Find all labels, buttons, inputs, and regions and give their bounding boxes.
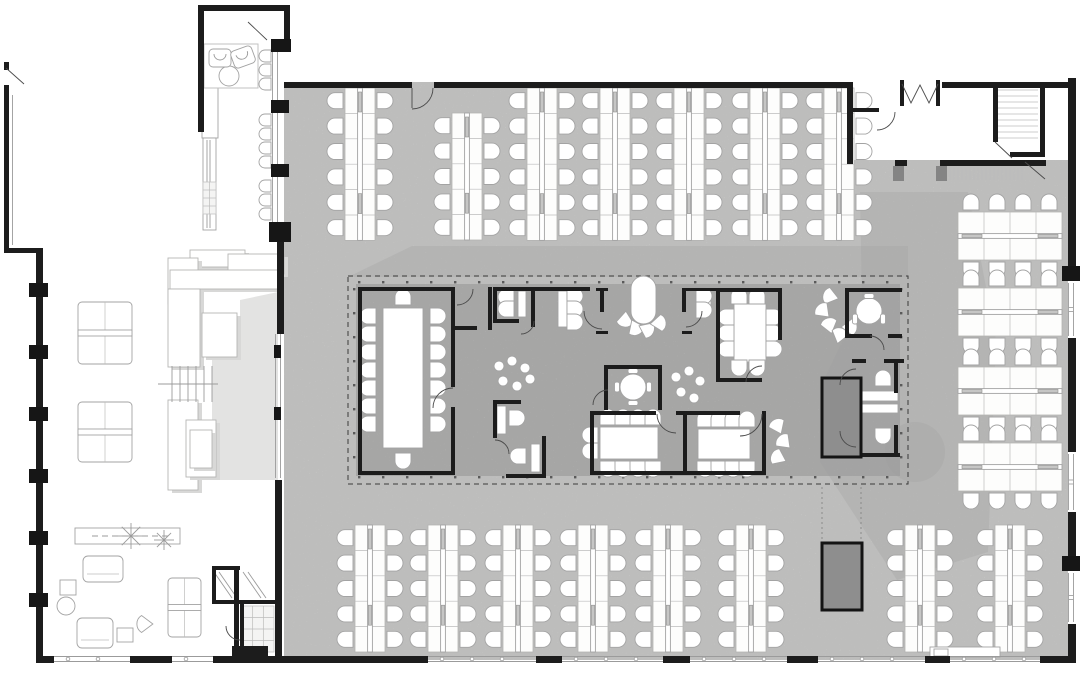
chair-shape [387,555,403,571]
chair-shape [806,169,822,185]
chair-shape [706,93,722,109]
task-chair [1027,581,1043,597]
chair-shape [875,370,891,386]
table-gap [78,330,132,336]
task-chair [327,144,343,160]
detail-line [248,572,266,598]
chair-shape [460,555,476,571]
task-chair [434,219,450,235]
chair-shape [377,169,393,185]
chair-shape [460,606,476,622]
chair-shape [525,374,535,384]
wall-segment [130,656,172,663]
task-chair [989,493,1005,509]
table [383,308,423,448]
table [117,628,133,642]
chair-shape [881,314,886,324]
side-chair [628,369,638,374]
task-chair [1015,270,1031,286]
bar-stool [259,64,271,76]
round-table [57,597,75,615]
track-mark [526,281,528,283]
task-chair [1015,349,1031,365]
chair-shape [768,555,784,571]
task-chair [768,631,784,647]
chair-shape [685,530,701,546]
chair-shape [360,308,376,324]
wall-segment [212,600,242,604]
chair-shape [1041,349,1057,365]
task-chair [430,398,446,414]
plant [154,530,174,550]
beanbag [494,361,504,371]
chair-shape [732,169,748,185]
chair-shape [806,93,822,109]
chair-shape [327,93,343,109]
task-chair [806,194,822,210]
chair-shape [732,144,748,160]
chair-shape [685,581,701,597]
chair-shape [977,555,993,571]
task-chair [559,144,575,160]
round-table [620,374,646,400]
wall-segment [847,82,853,164]
task-chair [768,581,784,597]
task-chair [656,93,672,109]
task-chair [696,302,712,318]
chair-shape [559,194,575,210]
task-chair [535,530,551,546]
wall-segment [590,471,766,475]
chair-shape [806,118,822,134]
chair-shape [718,581,734,597]
task-chair [582,194,598,210]
task-chair [806,220,822,236]
task-chair [460,530,476,546]
chair-shape [410,631,426,647]
task-chair [582,118,598,134]
planter [962,234,982,237]
planter [687,194,690,214]
task-chair [718,341,734,357]
task-chair [509,144,525,160]
task-chair [377,144,393,160]
chair-shape [1015,349,1031,365]
task-chair [582,144,598,160]
wall-segment [716,378,762,382]
task-chair [430,326,446,342]
task-chair [656,169,672,185]
track-mark [886,476,888,478]
table [698,429,750,459]
mullion-tick [66,657,70,661]
planter [368,529,371,549]
chair-shape [485,631,501,647]
armchair [230,45,257,69]
chair-shape [360,344,376,360]
chair-shape [377,220,393,236]
wall-segment [604,365,662,369]
desk-cluster [434,113,500,240]
track-mark [358,281,360,283]
detail-line [243,572,261,598]
chair-shape [689,393,699,403]
mullion-tick [604,657,608,661]
track-mark [900,408,902,410]
task-chair [509,169,525,185]
chair-shape [1015,270,1031,286]
sofa [77,618,113,648]
column-block [271,39,291,52]
wall-segment [845,288,849,338]
chair-shape [509,144,525,160]
task-chair [610,581,626,597]
chair-shape [460,581,476,597]
chair-shape [963,194,979,210]
chair-shape [768,581,784,597]
chair-shape [887,581,903,597]
column-block [29,407,48,421]
chair-shape [887,631,903,647]
bar-stool [259,180,271,192]
planter [666,529,669,549]
chair-shape [485,530,501,546]
chair-shape [259,128,271,140]
task-chair [434,169,450,185]
track-mark [886,281,888,283]
task-chair [610,530,626,546]
track-mark [502,476,504,478]
task-chair [460,631,476,647]
chair-shape [1027,631,1043,647]
task-chair [610,606,626,622]
chair-shape [628,369,638,374]
chair-shape [567,314,583,330]
task-chair [749,360,765,376]
desk-cluster [718,525,784,652]
chair-shape [628,401,638,406]
chair-shape [632,93,648,109]
wall-segment [787,656,818,663]
track-mark [790,476,792,478]
task-chair [718,581,734,597]
table [518,291,526,317]
chair-shape [782,220,798,236]
chair-shape [671,372,681,382]
chair-shape [484,118,500,134]
sofa-body [77,618,113,648]
track-mark [430,476,432,478]
chair-shape [610,631,626,647]
task-chair [977,606,993,622]
chair-shape [494,361,504,371]
planter [591,529,594,549]
table [558,291,567,327]
chair-shape [806,144,822,160]
task-chair [485,631,501,647]
wall-segment [716,288,720,382]
chair-shape [337,530,353,546]
planter [918,605,921,625]
task-chair [937,530,953,546]
track-mark [358,476,360,478]
track-mark [478,281,480,283]
plant [118,523,144,549]
task-chair [498,301,514,317]
task-chair [963,349,979,365]
wall-segment [451,287,455,387]
track-mark [670,281,672,283]
task-chair [806,93,822,109]
task-chair [706,93,722,109]
task-chair [732,169,748,185]
chair-shape [856,93,872,109]
bar-stool [259,142,271,154]
wall-segment [845,334,872,338]
task-chair [1041,349,1057,365]
chair-shape [610,581,626,597]
task-chair [977,581,993,597]
task-chair [337,555,353,571]
task-chair [1027,606,1043,622]
chair-shape [582,144,598,160]
task-chair [656,194,672,210]
chair-shape [937,530,953,546]
wall-segment [845,288,902,292]
lounge-chair [133,614,153,634]
task-chair [387,606,403,622]
mullion-tick [1069,308,1074,312]
wall-segment [1010,152,1042,157]
bar-stool [259,128,271,140]
planter [591,605,594,625]
chair-shape [768,606,784,622]
chair-shape [1041,493,1057,509]
desk-cluster [887,525,953,652]
task-chair [484,143,500,159]
chair-shape [610,606,626,622]
table [734,304,766,362]
desk-cluster [337,525,403,652]
track-mark [353,384,355,386]
chair-shape [484,169,500,185]
column-block [1062,266,1080,281]
task-chair [360,380,376,396]
chair-shape [731,360,747,376]
chair-shape [337,581,353,597]
mullion-tick [762,657,766,661]
chair-shape [327,220,343,236]
task-chair [337,606,353,622]
task-chair [559,220,575,236]
task-chair [327,169,343,185]
shadow-band [348,246,908,277]
wall-segment [590,411,656,415]
task-chair [718,555,734,571]
wall-segment [682,288,686,312]
desk-cluster [977,525,1043,652]
chair-shape [430,326,446,342]
track-mark [862,281,864,283]
table-gap [168,605,201,611]
chair-shape [582,220,598,236]
chair-shape [560,631,576,647]
task-chair [782,169,798,185]
wall-segment [900,80,904,106]
task-chair [963,270,979,286]
chair-shape [377,93,393,109]
planter [1008,605,1011,625]
chair-shape [782,93,798,109]
chair-shape [535,606,551,622]
wall-segment [853,108,879,112]
service-block [822,543,862,610]
task-chair [963,194,979,210]
chair-shape [887,555,903,571]
sofa-body [83,556,123,582]
chair-shape [259,78,271,90]
task-chair [535,606,551,622]
bar-stool [259,114,271,126]
track-mark [353,336,355,338]
task-chair [337,631,353,647]
chair-shape [635,555,651,571]
chair-shape [430,380,446,396]
wall-segment [658,365,662,410]
column-block [29,593,48,607]
chair-shape [512,381,522,391]
track-mark [900,456,902,458]
chair-shape [887,606,903,622]
chair-shape [327,169,343,185]
table [497,406,506,434]
task-chair [656,220,672,236]
task-chair [610,555,626,571]
chair-shape [535,631,551,647]
stair-platform [168,289,200,367]
chair-shape [875,428,891,444]
task-chair [632,169,648,185]
track-mark [694,476,696,478]
wall-segment [198,5,290,11]
chair-shape [1041,194,1057,210]
beanbag [525,374,535,384]
task-chair [732,144,748,160]
chair-shape [582,118,598,134]
task-chair [485,581,501,597]
task-chair [685,631,701,647]
wall-segment [600,288,604,312]
task-chair [706,144,722,160]
task-chair [635,530,651,546]
task-chair [632,93,648,109]
track-mark [742,281,744,283]
task-chair [635,606,651,622]
task-chair [782,118,798,134]
planter [540,92,543,112]
chair-shape [133,614,153,634]
wall-segment [1040,82,1045,157]
planter [749,605,752,625]
door-leaf [995,142,1012,158]
chair-shape [782,118,798,134]
wall-segment [488,287,492,330]
chair-shape [937,631,953,647]
task-chair [387,631,403,647]
task-chair [395,453,411,469]
wall-segment [277,242,284,334]
chair-shape [509,118,525,134]
wall-segment [493,400,521,404]
chair-shape [395,289,411,305]
task-chair [937,581,953,597]
beanbag [671,372,681,382]
task-chair [430,344,446,360]
task-chair [387,530,403,546]
chair-shape [1015,493,1031,509]
planter [1038,389,1058,392]
chair-shape [509,194,525,210]
planter [687,92,690,112]
chair-shape [582,194,598,210]
task-chair [856,144,872,160]
chair-shape [259,194,271,206]
wall-segment [198,5,204,132]
wall-segment [455,326,477,330]
chair-shape [632,169,648,185]
task-chair [337,581,353,597]
task-chair [806,118,822,134]
task-chair [1027,555,1043,571]
task-chair [731,360,747,376]
wall-segment [506,474,546,478]
chair-shape [647,382,652,392]
task-chair [395,289,411,305]
task-chair [856,220,872,236]
chair-shape [395,453,411,469]
task-chair [484,169,500,185]
task-chair [509,220,525,236]
task-chair [937,606,953,622]
planter [1038,465,1058,468]
chair-shape [498,376,508,386]
task-chair [706,194,722,210]
track-mark [478,476,480,478]
planter [441,605,444,625]
chair-shape [718,555,734,571]
task-chair [635,631,651,647]
track-mark [502,281,504,283]
chair-shape [484,219,500,235]
chair-shape [610,530,626,546]
task-chair [768,555,784,571]
chair-shape [732,220,748,236]
bar-stool [259,194,271,206]
task-chair [887,631,903,647]
task-chair [610,631,626,647]
task-chair [377,194,393,210]
bar-stool [259,50,271,62]
chair-shape [535,581,551,597]
chair-shape [656,93,672,109]
track-mark [382,281,384,283]
task-chair [535,555,551,571]
chair-shape [656,118,672,134]
task-chair [782,144,798,160]
planter [749,529,752,549]
chair-shape [718,309,734,325]
standing-oval-table [631,276,656,324]
